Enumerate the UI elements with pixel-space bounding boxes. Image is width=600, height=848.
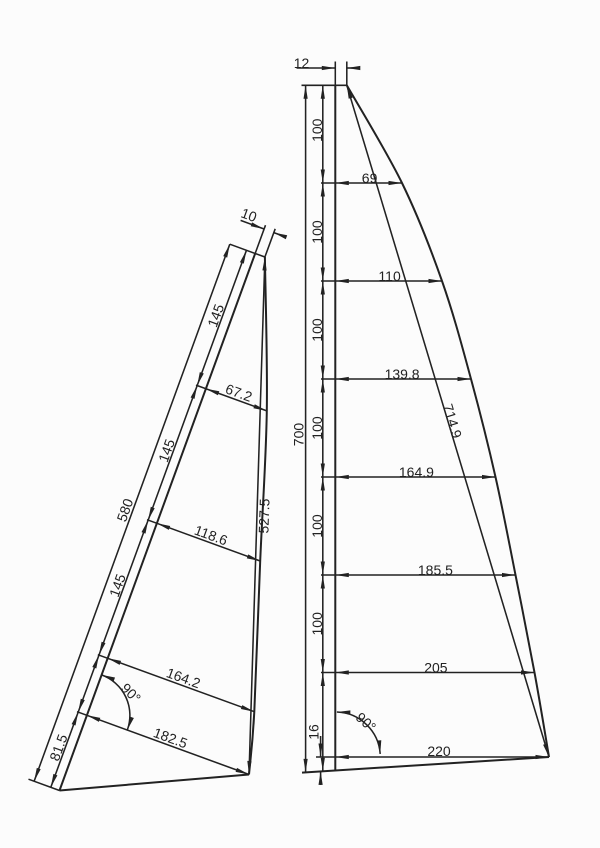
svg-text:100: 100 [309,416,325,440]
svg-text:700: 700 [290,423,306,447]
svg-text:69: 69 [362,170,378,186]
svg-text:100: 100 [309,118,325,142]
svg-text:110: 110 [378,268,401,284]
svg-text:100: 100 [309,318,325,342]
svg-text:185.5: 185.5 [418,562,453,578]
svg-text:220: 220 [427,743,451,759]
svg-text:100: 100 [309,612,325,636]
svg-text:205: 205 [424,660,448,676]
svg-text:100: 100 [309,514,325,538]
svg-text:16: 16 [305,724,321,740]
svg-text:139.8: 139.8 [385,366,420,382]
svg-text:12: 12 [294,55,310,71]
svg-text:164.9: 164.9 [399,464,434,480]
svg-text:100: 100 [309,220,325,244]
svg-text:527.5: 527.5 [255,498,272,534]
